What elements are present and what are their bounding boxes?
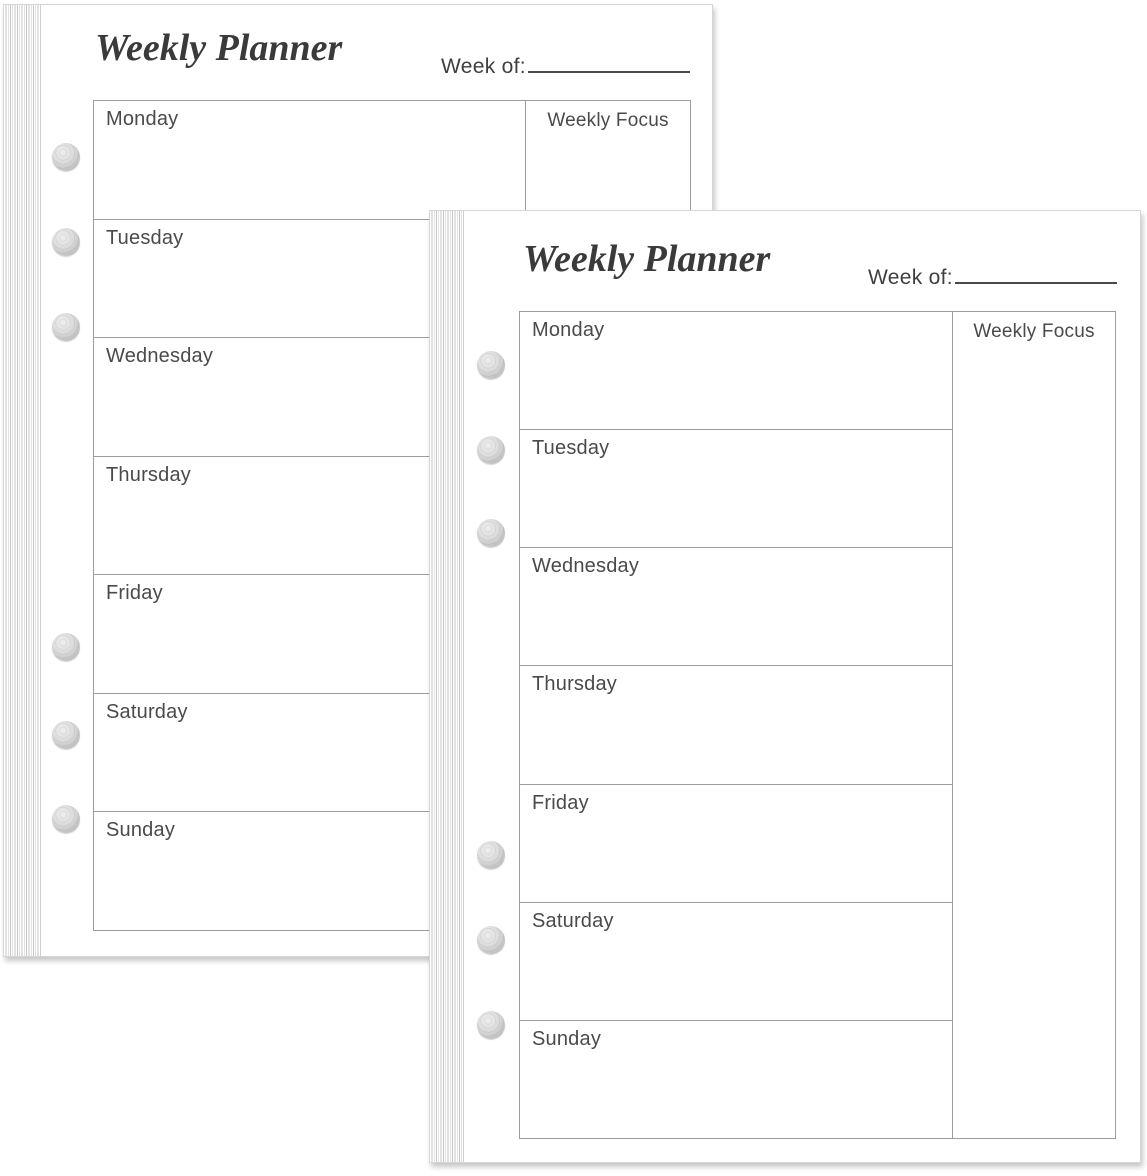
planner-title: Weekly Planner [523,238,770,282]
day-cell-thursday: Thursday [520,666,952,784]
day-cell-wednesday: Wednesday [520,548,952,666]
weekly-focus-header: Weekly Focus [953,321,1115,343]
binder-hole [52,313,80,341]
day-label: Sunday [532,1028,601,1050]
binder-hole [477,1011,505,1039]
week-of-label: Week of: [441,55,526,78]
day-cell-tuesday: Tuesday [520,430,952,548]
day-label: Wednesday [532,555,639,577]
planner-title: Weekly Planner [95,27,342,71]
binder-hole [52,143,80,171]
day-label: Thursday [532,673,617,695]
week-of-field: Week of: [441,55,690,79]
binder-hole [477,351,505,379]
week-of-field: Week of: [868,266,1117,290]
weekly-focus-column: Weekly Focus [953,312,1115,1138]
day-label: Tuesday [532,437,609,459]
day-label: Sunday [106,819,175,841]
binder-hole [477,436,505,464]
week-of-blank-line [955,277,1117,284]
planner-table: Monday Tuesday Wednesday Thursday Friday… [519,311,1116,1139]
day-label: Saturday [532,910,614,932]
day-label: Wednesday [106,345,213,367]
binder-hole [477,926,505,954]
day-label: Saturday [106,701,188,723]
day-column: Monday Tuesday Wednesday Thursday Friday… [520,312,953,1138]
day-cell-saturday: Saturday [520,903,952,1021]
planner-sheet: Weekly Planner Week of: Monday Tuesday W… [463,211,1140,1162]
day-cell-monday: Monday [520,312,952,430]
day-label: Monday [106,108,178,130]
weekly-focus-header: Weekly Focus [526,110,690,132]
binder-hole [52,805,80,833]
planner-product-image: Weekly Planner Week of: Monday Tuesday W… [0,0,1147,1176]
binder-hole [52,633,80,661]
stacked-sheets-edge [430,211,463,1162]
day-label: Monday [532,319,604,341]
stacked-sheets-edge [4,5,40,956]
day-label: Thursday [106,464,191,486]
binder-hole [477,519,505,547]
day-label: Tuesday [106,227,183,249]
day-cell-sunday: Sunday [520,1021,952,1138]
binder-hole [52,721,80,749]
binder-hole [52,228,80,256]
day-label: Friday [532,792,589,814]
day-cell-friday: Friday [520,785,952,903]
week-of-label: Week of: [868,266,953,289]
week-of-blank-line [528,66,690,73]
day-cell-monday: Monday [94,101,525,220]
day-label: Friday [106,582,163,604]
binder-hole [477,841,505,869]
planner-page-front: Weekly Planner Week of: Monday Tuesday W… [429,210,1141,1163]
